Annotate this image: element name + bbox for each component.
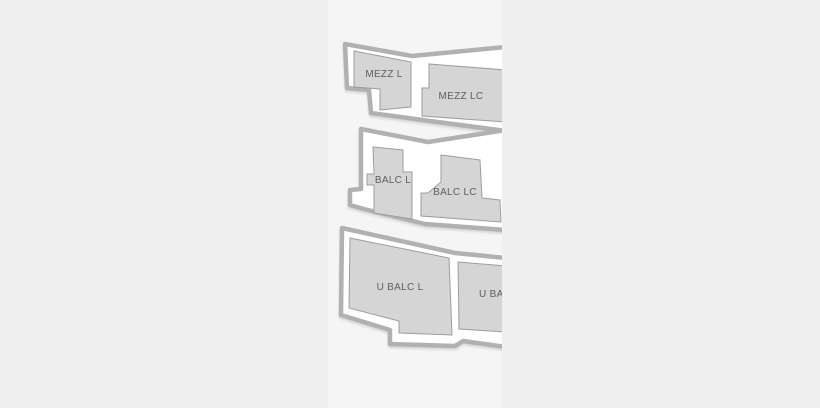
tier-balcony: BALC L BALC LC xyxy=(350,129,506,230)
section-label-balc-l: BALC L xyxy=(375,175,411,186)
section-label-mezz-lc: MEZZ LC xyxy=(439,91,484,102)
section-mezz-l[interactable] xyxy=(354,51,411,110)
section-label-u-balc-c: U BALC xyxy=(479,289,517,300)
seating-chart-canvas: MEZZ L MEZZ LC BALC L BALC LC U BALC L U… xyxy=(0,0,820,408)
seatmap-svg: MEZZ L MEZZ LC BALC L BALC LC U BALC L U… xyxy=(0,0,820,408)
section-label-balc-lc: BALC LC xyxy=(433,187,477,198)
tier-upper-balcony: U BALC L U BALC xyxy=(341,228,517,347)
section-label-mezz-l: MEZZ L xyxy=(365,69,402,80)
section-label-u-balc-l: U BALC L xyxy=(377,282,424,293)
tier-mezzanine: MEZZ L MEZZ LC xyxy=(345,44,506,131)
